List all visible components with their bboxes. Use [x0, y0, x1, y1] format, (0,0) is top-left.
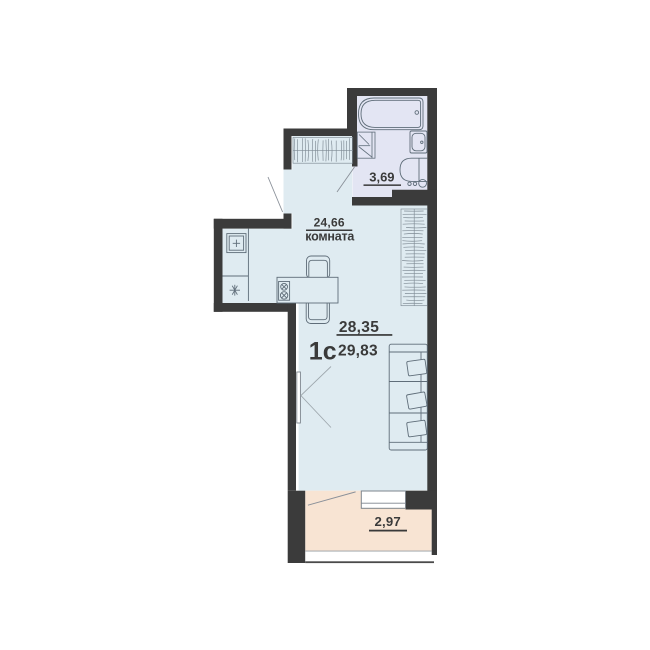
svg-text:28,35: 28,35 — [339, 319, 379, 336]
svg-text:2,97: 2,97 — [374, 514, 400, 529]
svg-text:29,83: 29,83 — [338, 342, 378, 359]
svg-text:комната: комната — [305, 230, 355, 244]
svg-text:3,69: 3,69 — [369, 170, 394, 185]
svg-text:24,66: 24,66 — [314, 216, 345, 230]
svg-text:1с: 1с — [309, 337, 337, 365]
